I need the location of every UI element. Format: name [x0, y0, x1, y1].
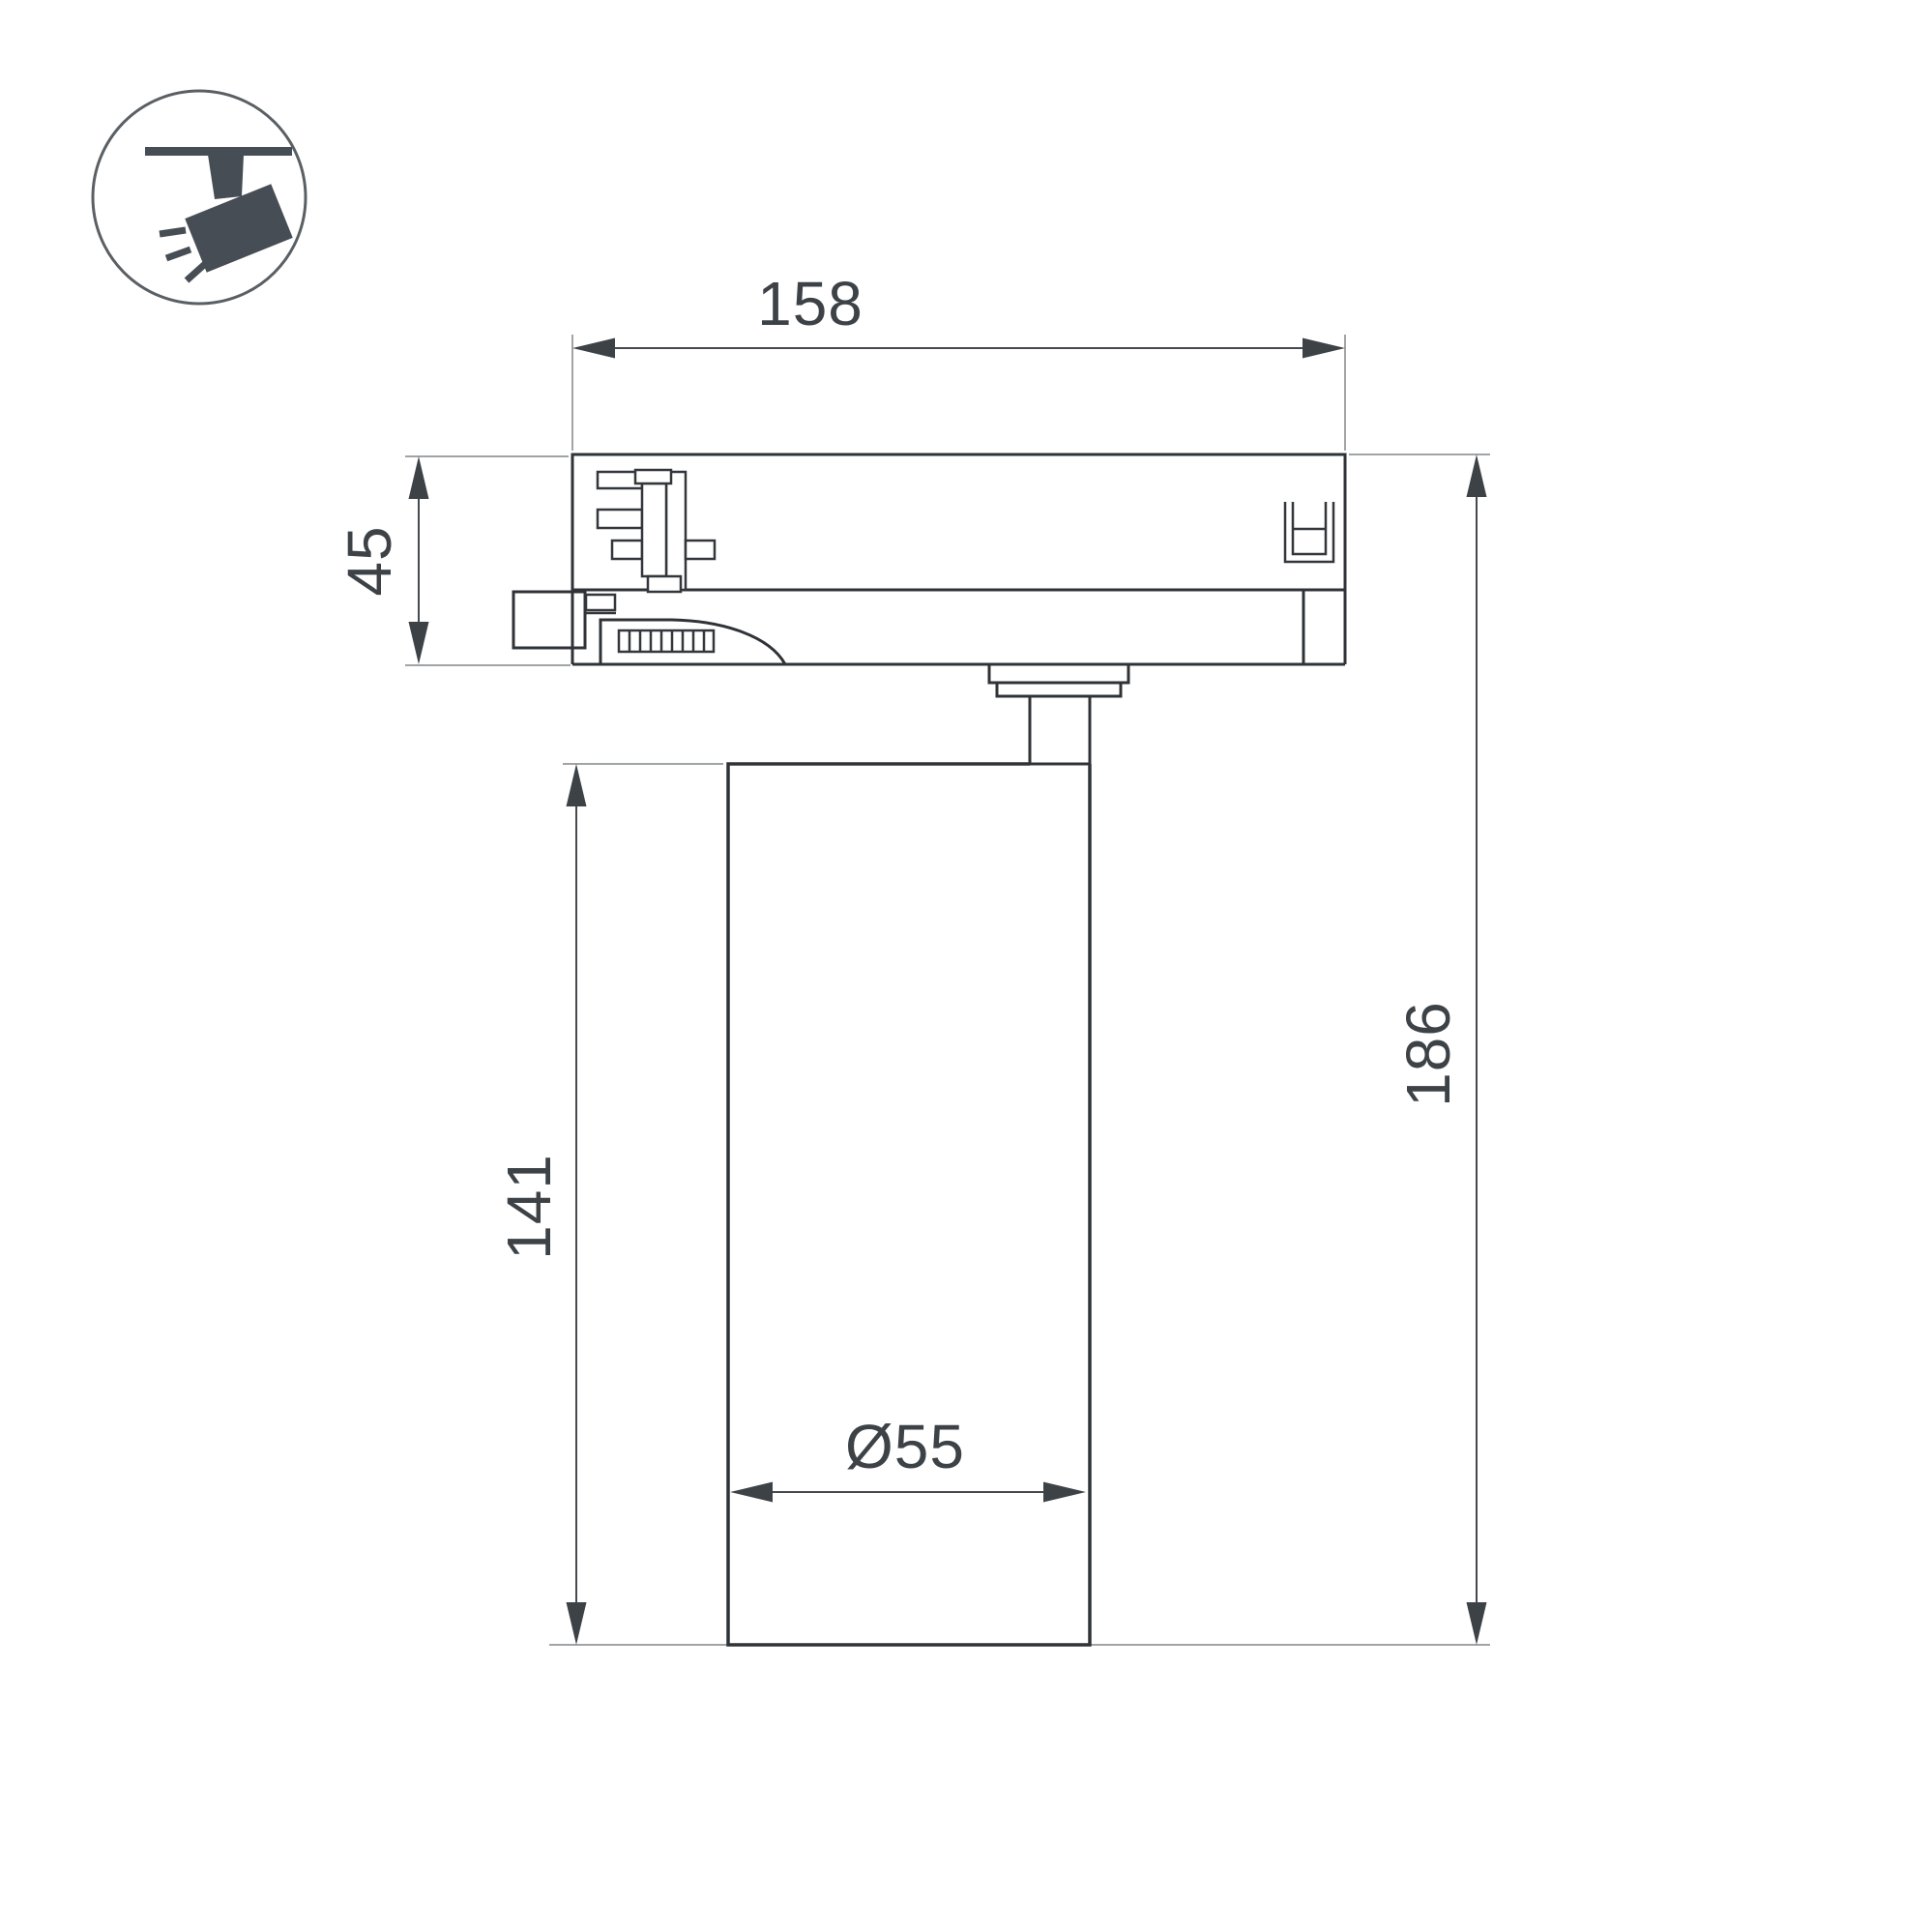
arrow-186-up: [1467, 454, 1487, 497]
stem-flange-narrow: [997, 683, 1121, 696]
contact-foot: [648, 576, 681, 592]
label-body-diameter: Ø55: [845, 1412, 965, 1481]
arrow-186-down: [1467, 1602, 1487, 1645]
contact-prong-middle: [598, 510, 642, 528]
label-adapter-width: 158: [757, 269, 864, 338]
label-adapter-height: 45: [335, 525, 404, 596]
arrow-45-up: [409, 456, 429, 499]
arrow-158-right: [1303, 338, 1345, 359]
icon-track-bar: [145, 147, 292, 156]
label-body-height: 141: [494, 1154, 564, 1260]
arrow-158-left: [572, 338, 615, 359]
contact-prong-lower: [612, 541, 642, 559]
arrow-45-down: [409, 622, 429, 664]
stem: [1030, 696, 1090, 764]
track-light-dimension-drawing: 158 45 141 186 Ø55: [0, 0, 1932, 1932]
contact-column-right: [666, 472, 686, 590]
track-spotlight-icon: [93, 91, 306, 304]
lamp-body-cylinder: [728, 764, 1090, 1645]
label-total-height: 186: [1393, 1001, 1463, 1107]
adapter-latch: [513, 592, 585, 648]
contact-tab-right: [686, 541, 715, 559]
dimension-labels: 158 45 141 186 Ø55: [335, 269, 1463, 1481]
arrow-55-right: [1043, 1482, 1086, 1503]
contact-column-main: [642, 483, 666, 576]
arrow-141-down: [567, 1602, 587, 1645]
stem-flange-wide: [989, 664, 1128, 683]
contact-cap: [635, 470, 671, 483]
arrow-141-up: [567, 764, 587, 806]
latch-spring: [586, 595, 615, 610]
arrow-55-left: [730, 1482, 773, 1503]
track-adapter-body: [572, 454, 1345, 590]
technical-drawing-page: 158 45 141 186 Ø55: [0, 0, 1932, 1932]
